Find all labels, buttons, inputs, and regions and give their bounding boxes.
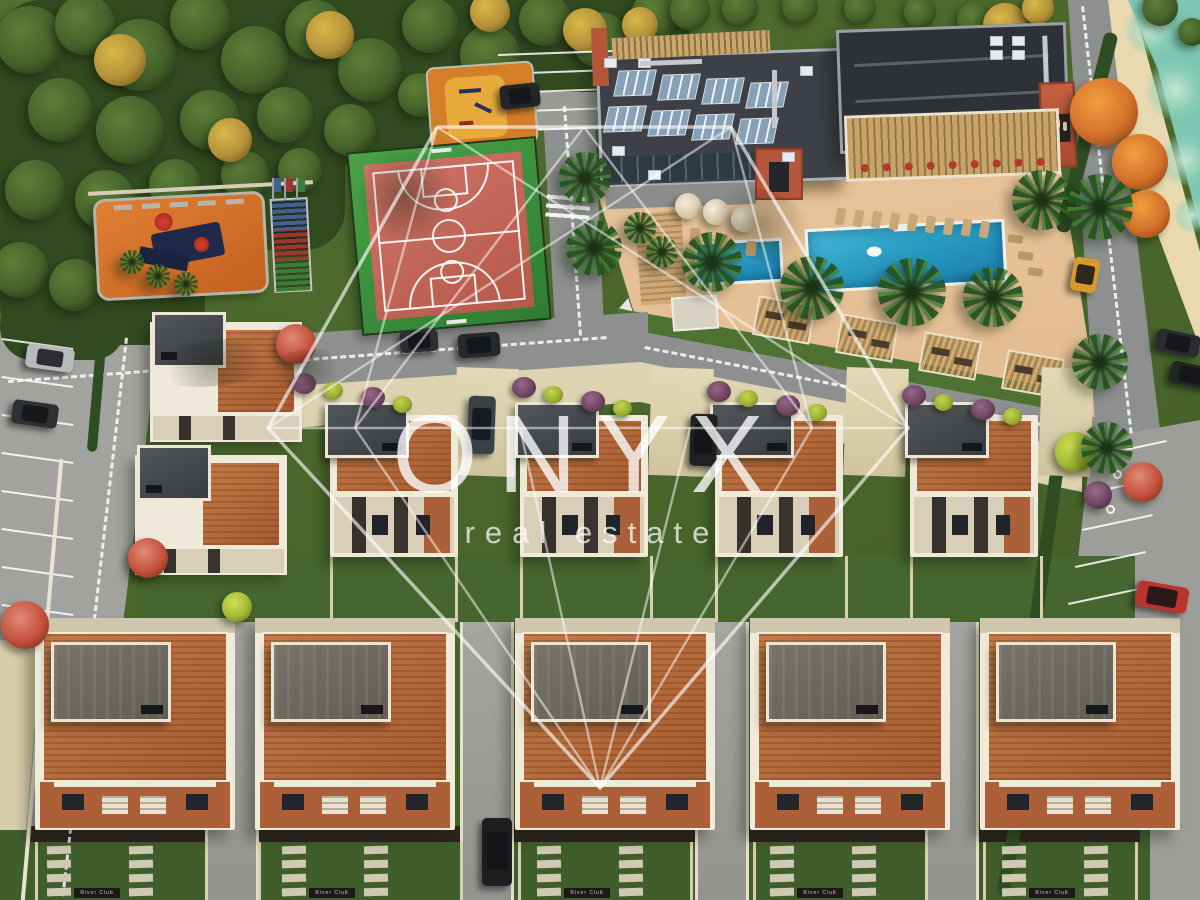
palm-tree <box>1081 422 1133 474</box>
facade-stone-stripe <box>542 497 556 553</box>
villa-roof-terrace <box>201 461 281 547</box>
palm-tree <box>646 236 678 268</box>
villa-rear-band <box>750 618 950 633</box>
villa-front-face <box>40 782 230 828</box>
tree-lime <box>222 592 252 622</box>
villa-rear-band <box>515 618 715 633</box>
car-windshield <box>467 336 492 354</box>
stepping-stone <box>619 860 643 869</box>
terrace-chair-red <box>883 163 891 171</box>
stepping-stone <box>282 888 306 897</box>
clubhouse-pergola <box>844 108 1061 181</box>
shrub-purple <box>776 395 800 416</box>
villa-penthouse-roof <box>271 642 391 722</box>
shrub-lime <box>613 400 632 417</box>
flag-banner <box>274 178 281 192</box>
yard-wall <box>518 842 521 900</box>
facade-stone-stripe <box>932 497 946 553</box>
front-canopy <box>54 782 216 787</box>
car-windshield <box>21 404 49 424</box>
villa-front-face <box>755 782 945 828</box>
penthouse-window <box>856 705 878 714</box>
stepping-stone <box>619 888 643 897</box>
rooftop-ac-unit <box>604 58 617 68</box>
bench <box>198 200 216 206</box>
stepping-stone <box>770 874 794 883</box>
front-canopy <box>769 782 931 787</box>
river-highlight <box>1145 60 1200 120</box>
solar-panel-array <box>745 81 789 108</box>
bleacher-green <box>275 259 311 292</box>
stepping-stone <box>47 874 71 883</box>
palm-tree <box>146 264 170 288</box>
car-windshield <box>487 832 508 870</box>
stepping-stone <box>282 874 306 883</box>
basketball-hoop <box>431 147 451 153</box>
car-windshield <box>1164 333 1191 353</box>
villa-lower-4 <box>750 618 950 830</box>
rooftop-ac-unit <box>1012 36 1025 46</box>
shrub-purple <box>581 391 605 412</box>
front-canopy <box>534 782 696 787</box>
solar-panel-array <box>613 69 657 96</box>
cabana-lounger <box>1014 365 1033 375</box>
stepping-stone <box>1002 874 1026 883</box>
facade-window <box>186 794 208 810</box>
stepping-stone <box>129 846 153 855</box>
solar-panel-array <box>691 113 735 140</box>
shrub-lime <box>808 404 827 421</box>
bleacher-blue <box>272 199 308 232</box>
car-driveway-upper-2 <box>689 414 718 467</box>
penthouse-window <box>962 443 982 451</box>
facade-window <box>62 794 84 810</box>
entrance-stairs <box>1085 796 1111 814</box>
yard-wall <box>690 842 693 900</box>
pool-umbrella <box>675 193 701 219</box>
villa-penthouse-roof <box>51 642 171 722</box>
car-driveway-bottom <box>482 818 512 886</box>
yard-wall <box>330 556 333 622</box>
terrace-chair-red <box>1015 159 1023 167</box>
suv-road-1 <box>399 329 438 354</box>
stepping-stone <box>1002 860 1026 869</box>
terrace-chair-red <box>993 159 1001 167</box>
villa-upper-1 <box>330 415 458 557</box>
shrub-lime <box>324 382 343 399</box>
facade-window <box>406 794 428 810</box>
stepping-stone <box>364 860 388 869</box>
villa-lower-5 <box>980 618 1180 830</box>
palm-tree <box>1012 170 1072 230</box>
bleacher-red <box>273 229 309 262</box>
yard-wall <box>258 842 261 900</box>
palm-tree <box>1072 334 1128 390</box>
palm-tree <box>1067 174 1133 240</box>
shrub-purple <box>707 381 731 402</box>
villa-penthouse-roof <box>766 642 886 722</box>
entrance-stairs <box>817 796 843 814</box>
penthouse-window <box>361 705 383 714</box>
penthouse-window <box>572 443 592 451</box>
basketball-hoop <box>446 319 466 325</box>
stepping-stone <box>619 846 643 855</box>
villa-front-face <box>719 497 839 553</box>
facade-window <box>416 515 430 535</box>
stepping-stone <box>129 874 153 883</box>
stepping-stone <box>537 860 561 869</box>
car-windshield <box>1177 365 1200 385</box>
stepping-stone <box>364 874 388 883</box>
villa-entrance-plaque: River Club <box>309 888 355 898</box>
shrub-purple <box>902 385 926 406</box>
yard-wall <box>910 556 913 622</box>
shrub-purple <box>361 387 385 408</box>
facade-window <box>777 794 799 810</box>
palm-tree <box>174 272 198 296</box>
villa-upper-4 <box>910 415 1038 557</box>
tree-yellow <box>306 11 354 59</box>
tree-purple <box>1084 481 1112 509</box>
tree-green <box>28 78 92 142</box>
facade-window <box>666 794 688 810</box>
car-driveway-upper-1 <box>467 396 496 455</box>
villa-front-face <box>260 782 450 828</box>
suv-road-2 <box>457 332 501 359</box>
bench <box>142 203 160 209</box>
solar-panel-array <box>603 105 647 132</box>
yard-wall <box>460 842 463 900</box>
car-windshield <box>1146 586 1178 609</box>
tree-shadow-on-court <box>351 151 461 241</box>
villa-upper-3 <box>715 415 843 557</box>
penthouse-window <box>767 443 787 451</box>
yard-wall <box>455 556 458 622</box>
car-windshield <box>694 424 714 454</box>
facade-stone-stripe <box>179 416 191 440</box>
solar-panel-array <box>657 73 701 100</box>
tree-green <box>96 96 164 164</box>
stepping-stone <box>47 888 71 897</box>
stepping-stone <box>129 860 153 869</box>
entrance-stairs <box>1047 796 1073 814</box>
villa-entrance-plaque: River Club <box>1029 888 1075 898</box>
car-right-parked-1 <box>1154 328 1200 359</box>
villa-penthouse-roof <box>996 642 1116 722</box>
rooftop-ac-unit <box>800 66 813 76</box>
terrace-chair-red <box>1037 158 1045 166</box>
palm-tree <box>878 258 946 326</box>
rooftop-ac-unit <box>612 146 625 156</box>
yard-wall <box>753 842 756 900</box>
clubhouse-glass-front <box>606 151 777 183</box>
shrub-lime <box>1003 408 1022 425</box>
cabana-lounger <box>871 339 890 349</box>
facade-stone-stripe <box>779 497 793 553</box>
facade-stone-stripe <box>974 497 988 553</box>
tree-green <box>722 0 758 26</box>
solar-panel-array <box>647 109 691 136</box>
yard-wall <box>650 556 653 622</box>
pool-float-swan <box>866 246 882 257</box>
yard-wall <box>35 842 38 900</box>
villa-front-face <box>985 782 1175 828</box>
stepping-stone <box>619 874 643 883</box>
yard-wall <box>715 556 718 622</box>
cabana-lounger <box>931 347 950 357</box>
facade-window <box>606 515 620 535</box>
terrace-chair-red <box>905 162 913 170</box>
stepping-stone <box>1084 888 1108 897</box>
stepping-stone <box>770 846 794 855</box>
stepping-stone <box>282 860 306 869</box>
stepping-stone <box>1084 874 1108 883</box>
yard-wall <box>845 556 848 622</box>
facade-window <box>901 794 923 810</box>
penthouse-window <box>621 705 643 714</box>
tree-green <box>257 87 313 143</box>
villa-upper-2 <box>520 415 648 557</box>
facade-stone-stripe <box>394 497 408 553</box>
stepping-stone <box>1084 860 1108 869</box>
stepping-stone <box>770 860 794 869</box>
stepping-stone <box>852 874 876 883</box>
stepping-stone <box>852 860 876 869</box>
facade-stone-stripe <box>223 416 235 440</box>
penthouse-window <box>382 443 402 451</box>
stepping-stone <box>1002 888 1026 897</box>
tree-red <box>1123 462 1163 502</box>
stepping-stone <box>364 846 388 855</box>
car-windshield <box>1074 263 1095 285</box>
shrub-lime <box>934 394 953 411</box>
villa-rear-band <box>35 618 235 633</box>
bench <box>226 199 244 205</box>
stepping-stone <box>282 846 306 855</box>
villa-penthouse-roof <box>531 642 651 722</box>
tree-green <box>782 0 818 24</box>
clubhouse-entrance-door <box>769 162 789 192</box>
cabana-lounger <box>765 311 784 321</box>
facade-window <box>1007 794 1029 810</box>
front-canopy <box>274 782 436 787</box>
stepping-stone <box>1002 846 1026 855</box>
tree-yellow <box>1022 0 1054 24</box>
villa-penthouse-roof <box>137 445 211 501</box>
front-canopy <box>999 782 1161 787</box>
stepping-stone <box>770 888 794 897</box>
stepping-stone <box>47 860 71 869</box>
stepping-stone <box>47 846 71 855</box>
flag-banner <box>298 178 305 192</box>
villa-lower-3 <box>515 618 715 830</box>
tree-yellow <box>208 118 252 162</box>
entrance-stairs <box>582 796 608 814</box>
stepping-stone <box>129 888 153 897</box>
rooftop-ac-unit <box>1012 50 1025 60</box>
fitness-path <box>444 74 508 140</box>
pool-cabin <box>671 294 719 331</box>
car-parking-top <box>499 82 541 110</box>
cabana-lounger <box>788 321 807 331</box>
penthouse-window <box>146 485 162 493</box>
stepping-stone <box>852 846 876 855</box>
facade-stone-stripe <box>208 549 220 573</box>
yard-wall <box>925 842 928 900</box>
tree-red <box>1 601 49 649</box>
tree-yellow <box>94 34 146 86</box>
villa-lower-1 <box>35 618 235 830</box>
bleachers <box>270 197 313 293</box>
penthouse-window <box>141 705 163 714</box>
rooftop-ac-unit <box>648 170 661 180</box>
facade-window <box>282 794 304 810</box>
terrace-chair-red <box>949 161 957 169</box>
penthouse-window <box>1086 705 1108 714</box>
villa-front-face <box>914 497 1034 553</box>
entrance-stairs <box>102 796 128 814</box>
clubhouse-accent-wall <box>591 28 609 87</box>
tree-green <box>49 259 101 311</box>
facade-window <box>562 515 578 535</box>
yard-wall <box>1135 842 1138 900</box>
villa-front-face <box>334 497 454 553</box>
entrance-stairs <box>322 796 348 814</box>
yard-wall <box>983 842 986 900</box>
palm-tree <box>963 267 1023 327</box>
gym-sign-figure <box>1063 122 1067 131</box>
stepping-stone <box>537 874 561 883</box>
flag-banner <box>286 178 293 192</box>
stepping-stone <box>852 888 876 897</box>
yard-wall <box>1040 556 1043 622</box>
driveway-upper <box>843 367 909 477</box>
facade-window <box>952 515 968 535</box>
shrub-lime <box>393 396 412 413</box>
rooftop-ac-unit <box>990 36 1003 46</box>
villa-lower-2 <box>255 618 455 830</box>
villa-entrance-plaque: River Club <box>797 888 843 898</box>
stepping-stone <box>1084 846 1108 855</box>
cabana-lounger <box>954 357 973 367</box>
shrub-purple <box>971 399 995 420</box>
car-right-parked-2 <box>1168 360 1200 390</box>
entrance-stairs <box>855 796 881 814</box>
yard-wall <box>205 842 208 900</box>
shrub-lime <box>739 390 758 407</box>
terrace-chair-red <box>861 164 869 172</box>
facade-window <box>996 515 1010 535</box>
play-canopy-red <box>154 212 173 231</box>
bench <box>170 202 188 208</box>
tree-green <box>221 26 289 94</box>
rooftop-ac-unit <box>782 152 795 162</box>
tree-green <box>324 104 376 156</box>
tree-green <box>1178 18 1200 46</box>
stepping-stone <box>537 888 561 897</box>
tree-green <box>5 160 65 220</box>
facade-window <box>757 515 773 535</box>
facade-window <box>801 515 815 535</box>
stepping-stone <box>537 846 561 855</box>
disabled-parking-icon <box>1106 505 1115 514</box>
car-windshield <box>408 333 430 350</box>
facade-stone-stripe <box>584 497 598 553</box>
bench <box>114 205 132 211</box>
terrace-chair-red <box>971 160 979 168</box>
entrance-stairs <box>620 796 646 814</box>
facade-stone-stripe <box>352 497 366 553</box>
villa-entrance-plaque: River Club <box>564 888 610 898</box>
rooftop-ac-unit <box>990 50 1003 60</box>
palm-tree <box>120 250 144 274</box>
solar-panel-array <box>701 77 745 104</box>
stepping-stone <box>364 888 388 897</box>
entrance-stairs <box>360 796 386 814</box>
roof-skylight <box>855 90 1050 103</box>
palm-tree <box>566 220 622 276</box>
facade-window <box>372 515 388 535</box>
palm-tree <box>780 256 844 320</box>
palm-tree <box>559 152 611 204</box>
villa-entrance-plaque: River Club <box>74 888 120 898</box>
villa-rear-band <box>980 618 1180 633</box>
entrance-stairs <box>140 796 166 814</box>
aerial-render-villa-complex: River ClubRiver ClubRiver ClubRiver Club… <box>0 0 1200 900</box>
tree-red <box>128 538 168 578</box>
car-windshield <box>508 86 532 105</box>
villa-front-face <box>524 497 644 553</box>
villa-front-face <box>520 782 710 828</box>
rooftop-duct <box>772 70 777 128</box>
cabana-lounger <box>848 329 867 339</box>
villa-rear-band <box>255 618 455 633</box>
villa-front-face <box>153 416 299 440</box>
terrace-chair-red <box>927 162 935 170</box>
facade-window <box>1131 794 1153 810</box>
tree-green <box>844 0 876 24</box>
yard-wall <box>520 556 523 622</box>
car-windshield <box>472 407 492 440</box>
shrub-lime <box>544 386 563 403</box>
shrub-purple <box>512 377 536 398</box>
tree-green <box>904 0 936 28</box>
facade-window <box>542 794 564 810</box>
facade-stone-stripe <box>737 497 751 553</box>
car-windshield <box>36 348 65 368</box>
